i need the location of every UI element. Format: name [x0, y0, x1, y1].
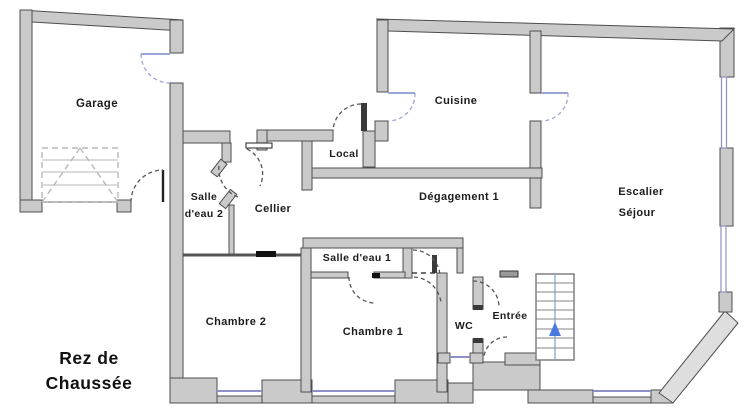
wall-wc-bottom-a [438, 353, 450, 363]
room-label-salle-deau-2-line1: Salle [191, 191, 218, 203]
garage-door [42, 148, 118, 202]
room-label-degagement: Dégagement 1 [419, 191, 499, 203]
door-sill-sde1 [372, 273, 380, 278]
wall-divider-lower [530, 121, 541, 208]
wall-wc-left [437, 273, 447, 392]
wall-south-sliver-1 [217, 396, 262, 403]
wall-lobby-stub [457, 248, 463, 273]
wall-top-right [377, 19, 734, 41]
room-label-sejour: Séjour [619, 207, 656, 219]
wall-bay-diagonal [659, 311, 738, 403]
door-arc-cuisine-right [541, 93, 568, 121]
wall-local-left [302, 140, 312, 190]
wall-south-block-3 [473, 362, 540, 390]
door-arc-entree [484, 337, 507, 356]
window-east-1 [722, 77, 727, 148]
wall-south-sliver-2 [312, 396, 395, 403]
room-label-chambre-2: Chambre 2 [206, 316, 266, 328]
floor-title-line2: Chaussée [46, 373, 133, 393]
wall-cuisine-left-lower [375, 121, 388, 141]
room-label-salle-deau-2-line2: d'eau 2 [185, 208, 224, 220]
jamb-wc-top [473, 305, 483, 310]
wall-south-block-4 [528, 390, 593, 403]
wall-garage-pillar [117, 200, 131, 212]
wall-west-upper [170, 20, 183, 53]
wall-divider-upper [530, 31, 541, 93]
room-label-garage: Garage [76, 98, 118, 110]
wall-south-under-wc [448, 383, 473, 403]
room-label-escalier: Escalier [618, 186, 664, 198]
wall-east-lower-block [719, 292, 732, 312]
wall-sde2-stub [222, 143, 231, 162]
wall-local-right [363, 131, 375, 167]
room-label-local: Local [329, 148, 358, 160]
wall-chambre-divider [301, 248, 311, 392]
door-arc-cellier [247, 149, 263, 186]
wall-garage-top [20, 10, 183, 31]
floor-title-line1: Rez de [59, 348, 118, 368]
wall-west-main [170, 83, 183, 393]
wall-corridor-top [312, 168, 542, 178]
wall-sde2-cellier-divider [229, 205, 234, 255]
wall-sejour-south-sliver [593, 397, 651, 403]
door-leaf-cellier [246, 143, 272, 148]
wall-entree-step [505, 353, 540, 365]
door-arc-garage-porch [141, 54, 170, 83]
room-label-cuisine: Cuisine [435, 95, 478, 107]
staircase [536, 274, 574, 360]
door-arc-garage-south [131, 170, 163, 202]
wall-sw-corner [170, 378, 217, 403]
window-east-2 [721, 226, 726, 292]
wall-cuisine-left-upper [377, 20, 388, 92]
room-label-chambre-1: Chambre 1 [343, 326, 403, 338]
room-label-cellier: Cellier [255, 203, 292, 215]
jamb-porch [361, 103, 367, 131]
wall-wc-bottom-b [470, 353, 483, 363]
room-label-entree: Entrée [492, 310, 527, 322]
floor-plan-page: Garage Salle d'eau 2 Cellier Local Cuisi… [0, 0, 750, 420]
closet-bar [500, 271, 518, 277]
room-label-wc: WC [455, 320, 473, 332]
wall-local-top [257, 130, 333, 141]
door-sill-chambre2 [256, 251, 276, 257]
door-arc-cuisine-left [388, 93, 415, 121]
floor-plan: Garage Salle d'eau 2 Cellier Local Cuisi… [0, 0, 750, 420]
jamb-wc-bottom [473, 338, 483, 343]
door-arc-porch [333, 104, 361, 131]
wall-sde2-top [183, 131, 230, 143]
door-arc-sde1 [349, 277, 375, 303]
wall-sde1-row-top [303, 238, 463, 248]
windows-group [217, 77, 727, 391]
wall-sde1-bottom-a [311, 272, 348, 278]
doors-blue [141, 54, 568, 121]
wall-east-mid-block [720, 148, 733, 226]
room-label-salle-deau-1: Salle d'eau 1 [323, 252, 391, 264]
wall-garage-bottom-stub [20, 200, 42, 212]
wall-garage-left [20, 10, 32, 212]
